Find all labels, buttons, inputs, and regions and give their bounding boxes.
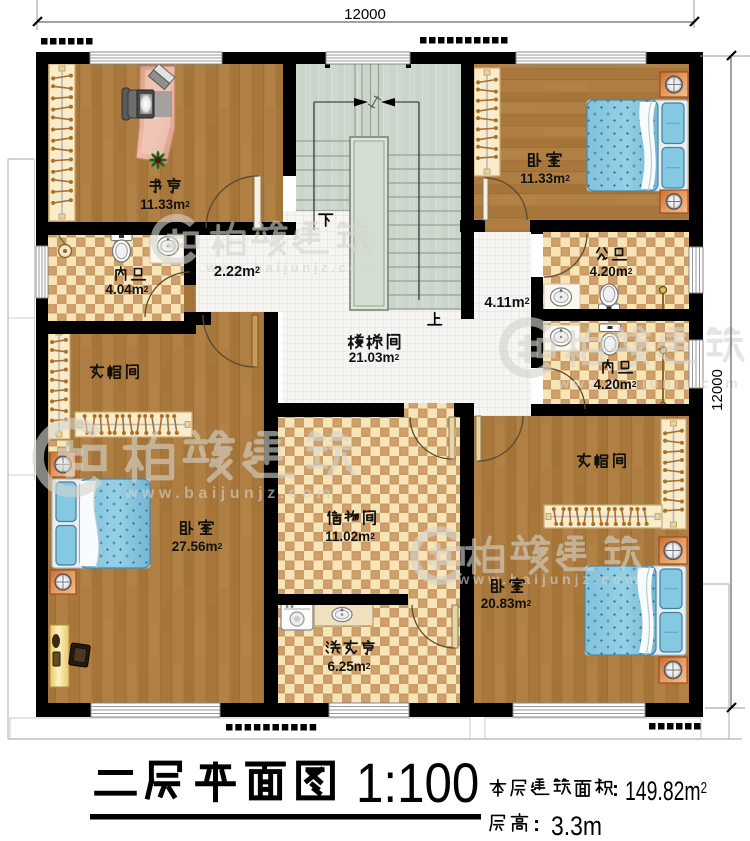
svg-text:www.baijunjz.com: www.baijunjz.com [457,571,641,587]
svg-text:2.22m2: 2.22m2 [214,264,260,280]
svg-text:www.baijunjz.com: www.baijunjz.com [124,485,335,502]
svg-text::: : [612,778,619,801]
svg-text:21.03m2: 21.03m2 [349,350,400,365]
svg-text:4.11m2: 4.11m2 [484,295,529,311]
svg-text:20.83m2: 20.83m2 [481,596,532,611]
svg-text:12000: 12000 [344,6,386,23]
svg-text:11.02m2: 11.02m2 [325,529,375,544]
svg-text:3.3m: 3.3m [551,811,602,841]
svg-text:1:100: 1:100 [356,752,479,815]
svg-text:6.25m2: 6.25m2 [328,659,371,674]
svg-text::: : [533,813,540,836]
svg-text:12000: 12000 [709,369,726,411]
svg-text:4.20m2: 4.20m2 [594,377,637,392]
svg-text:11.33m2: 11.33m2 [140,197,190,212]
svg-text:4.20m2: 4.20m2 [590,264,633,279]
svg-text:149.82m2: 149.82m2 [625,776,707,806]
svg-text:11.33m2: 11.33m2 [520,171,570,186]
svg-text:4.04m2: 4.04m2 [106,282,149,297]
svg-text:27.56m2: 27.56m2 [172,539,223,554]
